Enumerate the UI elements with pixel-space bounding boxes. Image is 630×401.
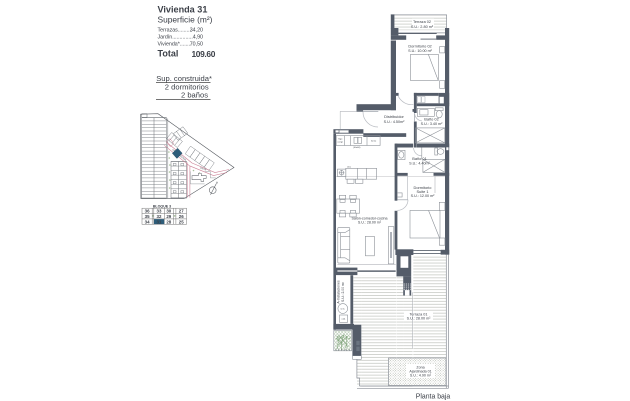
svg-text:Planta baja: Planta baja <box>416 393 451 400</box>
svg-text:32: 32 <box>157 214 162 219</box>
svg-text:Total: Total <box>158 48 179 58</box>
svg-text:Jardín..............: Jardín.............. <box>158 34 193 40</box>
svg-text:BLOQUE 3: BLOQUE 3 <box>153 204 171 208</box>
svg-text:109.60: 109.60 <box>192 49 216 59</box>
svg-text:2 baños: 2 baños <box>181 91 208 100</box>
svg-text:29: 29 <box>166 214 171 219</box>
svg-text:S.U.: 10.00 m²: S.U.: 10.00 m² <box>408 49 433 53</box>
svg-text:S.U.: 12.00 m²: S.U.: 12.00 m² <box>411 194 436 198</box>
svg-text:33: 33 <box>157 209 162 214</box>
svg-text:4,90: 4,90 <box>193 34 203 40</box>
svg-text:S.U.: 2.80 m²: S.U.: 2.80 m² <box>411 25 434 29</box>
svg-text:Distribuidor: Distribuidor <box>384 114 404 119</box>
svg-text:35: 35 <box>145 214 150 219</box>
svg-text:S.U.: 4.40m²: S.U.: 4.40m² <box>409 161 430 165</box>
svg-text:A-Instalaciones: A-Instalaciones <box>337 280 341 303</box>
svg-text:Baño 01: Baño 01 <box>412 156 427 161</box>
svg-text:vitro: vitro <box>347 165 352 168</box>
svg-text:30: 30 <box>166 209 171 214</box>
svg-text:36: 36 <box>145 209 150 214</box>
svg-text:Terrazas..........: Terrazas.......... <box>158 27 193 33</box>
svg-text:S.U.: 28.00 m²: S.U.: 28.00 m² <box>358 220 382 224</box>
svg-text:term.: term. <box>341 308 346 311</box>
svg-text:31: 31 <box>157 219 162 224</box>
svg-text:Dormitorio 02: Dormitorio 02 <box>408 44 431 49</box>
svg-text:S.U.: 4.50m²: S.U.: 4.50m² <box>384 120 405 124</box>
svg-text:cald.: cald. <box>342 319 346 321</box>
svg-text:25: 25 <box>179 219 184 224</box>
svg-text:horno: horno <box>371 139 377 142</box>
svg-text:Baño 02: Baño 02 <box>424 117 439 122</box>
svg-text:Vivienda 31: Vivienda 31 <box>158 4 208 14</box>
svg-text:frigo: frigo <box>338 138 343 141</box>
svg-text:S.U.: 28.00 m²: S.U.: 28.00 m² <box>407 317 432 321</box>
svg-text:Vivienda*........: Vivienda*........ <box>158 41 192 47</box>
svg-text:Terraza 02: Terraza 02 <box>413 20 431 24</box>
svg-text:S.U.: 2.00 m²: S.U.: 2.00 m² <box>341 281 345 302</box>
svg-text:34,20: 34,20 <box>190 27 203 33</box>
svg-text:(60x60): (60x60) <box>353 147 360 149</box>
svg-text:S.U.: 4.90 m²: S.U.: 4.90 m² <box>410 374 432 378</box>
svg-text:congl.: congl. <box>338 141 344 143</box>
svg-text:26: 26 <box>179 214 184 219</box>
svg-text:70,50: 70,50 <box>190 41 203 47</box>
svg-text:Superficie (m²): Superficie (m²) <box>158 14 213 24</box>
svg-text:34: 34 <box>145 219 150 224</box>
svg-text:CALLE: CALLE <box>200 166 208 171</box>
svg-text:28: 28 <box>166 219 171 224</box>
svg-text:27: 27 <box>179 209 184 214</box>
svg-text:S.U.: 3.40 m²: S.U.: 3.40 m² <box>421 122 443 126</box>
